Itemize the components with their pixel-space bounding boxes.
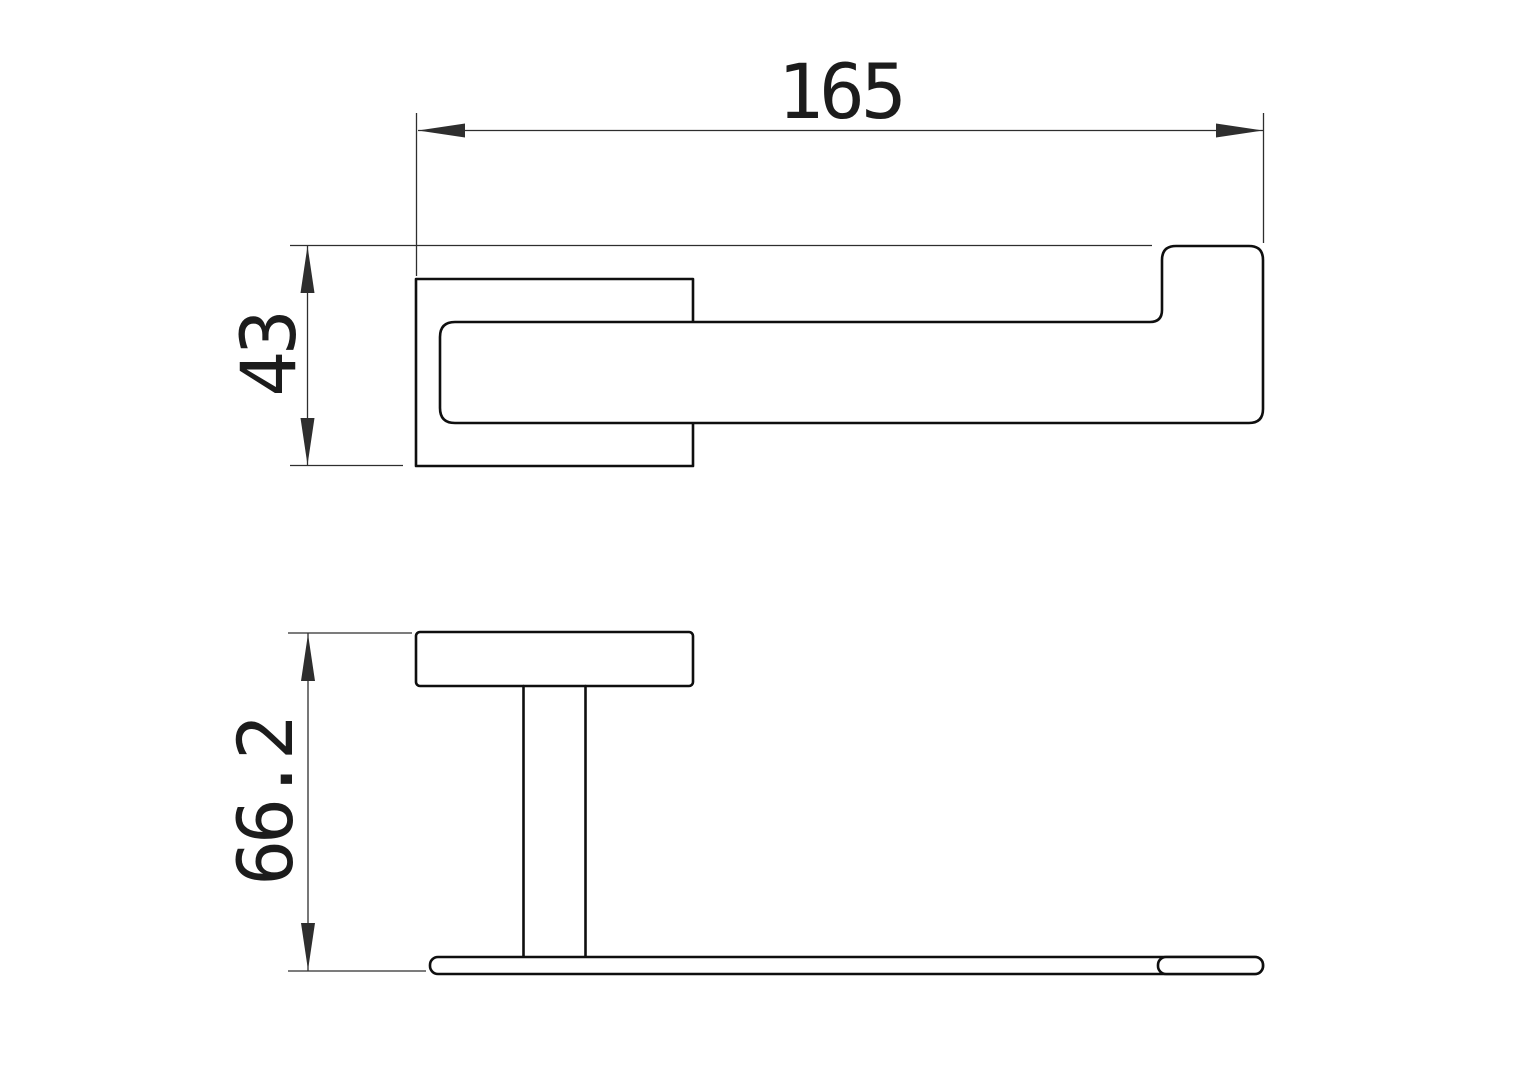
drawing-page: 165 43: [0, 0, 1528, 1080]
top-view-arm-outline: [440, 246, 1263, 423]
dimension-overall-width: 165: [417, 47, 1264, 276]
dimension-arrow-up-icon: [301, 246, 315, 293]
top-view: 165 43: [224, 47, 1264, 466]
dimension-arrow-left-icon: [418, 124, 465, 138]
front-view-bar-end-cap: [1158, 957, 1263, 974]
front-view: 66.2: [221, 632, 1263, 974]
dimension-arrow-down-icon: [301, 923, 315, 970]
front-view-mounting-plate: [416, 632, 693, 686]
dimension-label-width: 165: [777, 47, 902, 136]
technical-drawing-canvas: 165 43: [0, 0, 1528, 1080]
dimension-label-height: 66.2: [221, 718, 310, 885]
dimension-arrow-right-icon: [1216, 124, 1263, 138]
dimension-arrow-up-icon: [301, 634, 315, 681]
dimension-overall-height: 66.2: [221, 633, 426, 971]
dimension-label-depth: 43: [224, 313, 313, 397]
dimension-arrow-down-icon: [301, 418, 315, 465]
front-view-bar: [430, 957, 1263, 974]
